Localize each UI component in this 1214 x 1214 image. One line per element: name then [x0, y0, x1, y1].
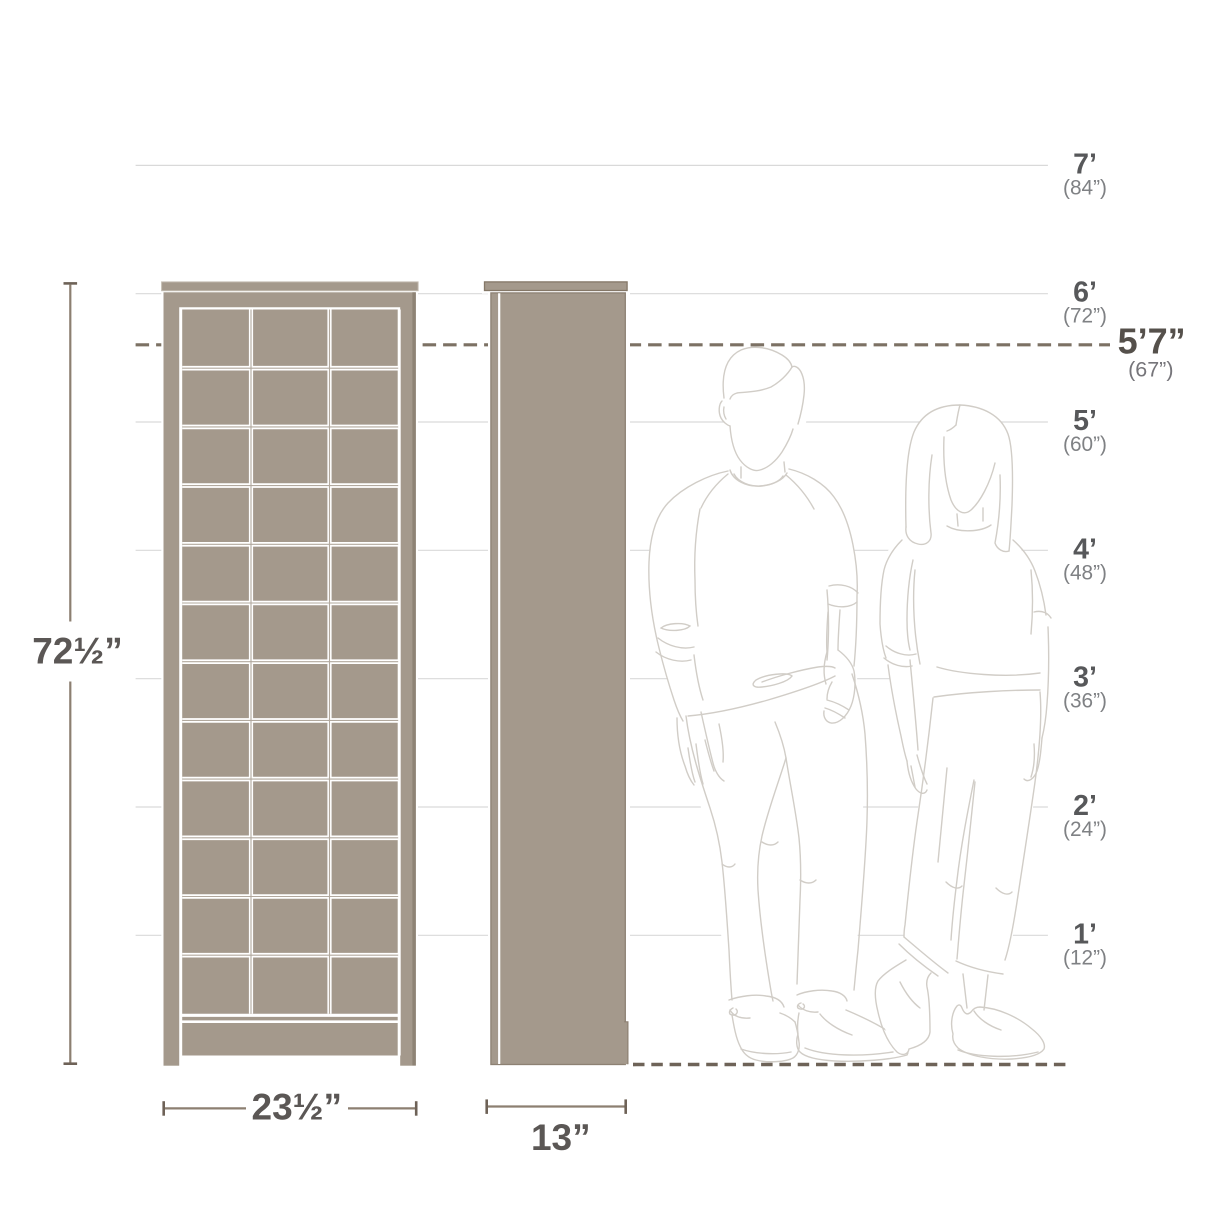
svg-text:13”: 13” [531, 1117, 591, 1158]
svg-text:(24”): (24”) [1063, 818, 1107, 841]
svg-text:(12”): (12”) [1063, 946, 1107, 969]
svg-text:5’7”: 5’7” [1118, 321, 1186, 362]
svg-text:72½”: 72½” [32, 630, 123, 671]
svg-text:(48”): (48”) [1063, 561, 1107, 584]
svg-text:(67”): (67”) [1128, 357, 1173, 381]
svg-text:23½”: 23½” [252, 1087, 343, 1128]
svg-text:(84”): (84”) [1063, 176, 1107, 199]
svg-text:(60”): (60”) [1063, 433, 1107, 456]
svg-text:(36”): (36”) [1063, 690, 1107, 713]
svg-text:(72”): (72”) [1063, 305, 1107, 328]
